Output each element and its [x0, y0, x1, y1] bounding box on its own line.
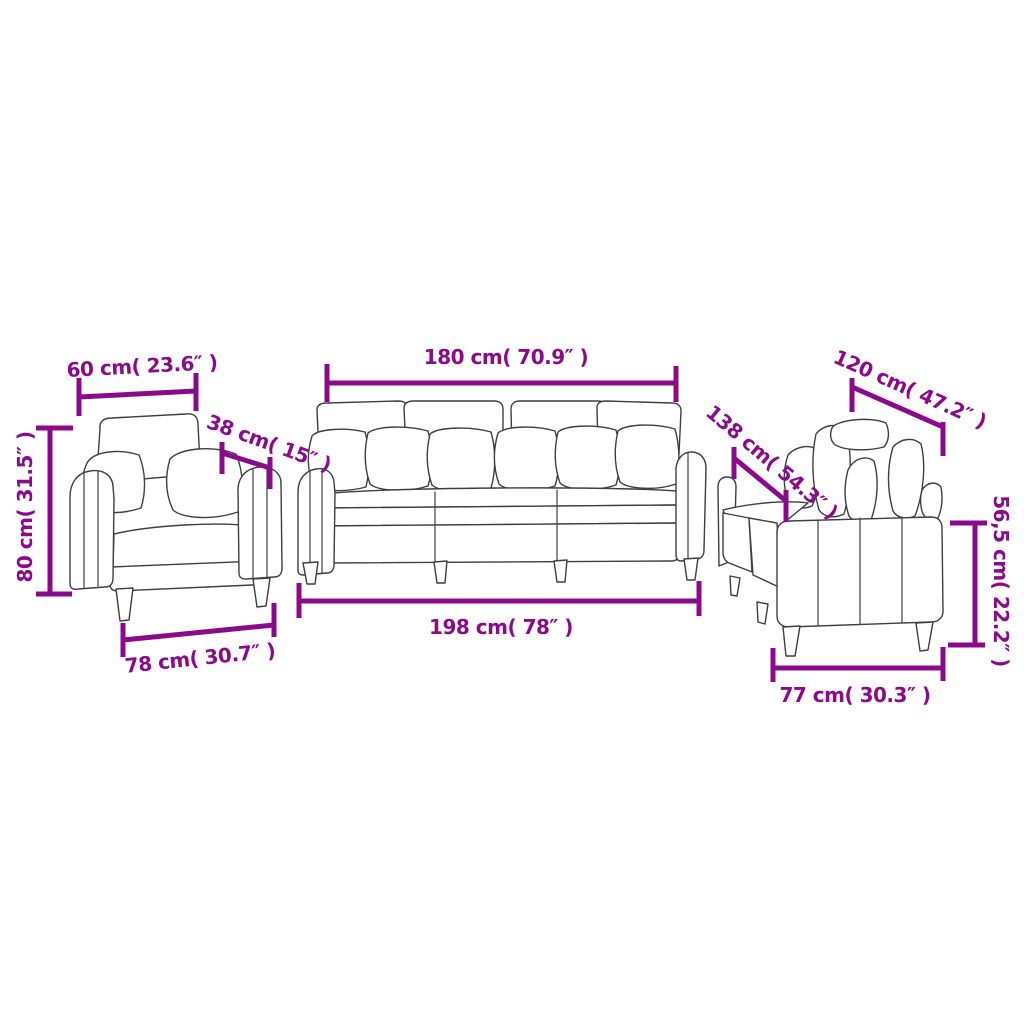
- sofa2-pillow-3: [831, 419, 889, 449]
- sofa2-width-bottom-dimension: [773, 647, 943, 682]
- sofa2-leg-back-1: [730, 576, 740, 596]
- sofa2-seat-face-2: [749, 518, 781, 588]
- sofa2-pillow-4: [845, 458, 877, 522]
- sofa2-height-label: 56,5 cm( 22.2″ ): [991, 495, 1011, 667]
- furniture-line-art: [0, 0, 1024, 1024]
- sofa2-leg-back-2: [757, 602, 768, 624]
- sofa2-pillow-5: [889, 439, 924, 518]
- armchair-throw-pillow-right: [167, 449, 243, 518]
- dimension-diagram: 60 cm( 23.6″ ) 38 cm( 15″ ) 80 cm( 31.5″…: [0, 0, 1024, 1024]
- sofa3-leg-1: [303, 562, 318, 584]
- armchair-leg-left: [116, 588, 133, 621]
- sofa3-width-bottom-label: 198 cm( 78″ ): [429, 617, 573, 637]
- sofa3-leg-4: [684, 558, 698, 580]
- sofa2-pillow-6: [921, 483, 942, 519]
- sofa3-throw-pillow-4: [494, 427, 558, 490]
- sofa2-leg-front-2: [916, 622, 933, 651]
- sofa2-height-dimension: [948, 523, 987, 645]
- sofa3-base: [318, 523, 679, 563]
- sofa3-right-arm: [676, 452, 706, 561]
- three-seater-drawing: [298, 401, 706, 584]
- sofa2-width-bottom-label: 77 cm( 30.3″ ): [780, 685, 931, 705]
- sofa3-width-bottom-dimension: [299, 581, 699, 618]
- sofa3-throw-pillow-6: [615, 425, 679, 488]
- sofa2-leg-front-1: [783, 626, 800, 656]
- sofa3-throw-pillow-2: [365, 427, 432, 490]
- armchair-height-label: 80 cm( 31.5″ ): [15, 432, 35, 583]
- armchair-right-arm: [238, 467, 282, 579]
- sofa3-width-top-dimension: [327, 364, 676, 402]
- sofa3-width-top-label: 180 cm( 70.9″ ): [424, 347, 588, 367]
- sofa3-left-arm: [298, 469, 335, 575]
- sofa3-leg-2: [434, 561, 447, 583]
- armchair-base: [110, 561, 260, 591]
- sofa3-throw-pillow-5: [555, 426, 620, 489]
- armchair-left-arm: [70, 471, 114, 590]
- sofa3-leg-3: [554, 560, 567, 582]
- armchair-leg-right: [253, 578, 270, 607]
- armchair-height-dimension: [36, 428, 73, 594]
- sofa3-throw-pillow-3: [427, 428, 495, 492]
